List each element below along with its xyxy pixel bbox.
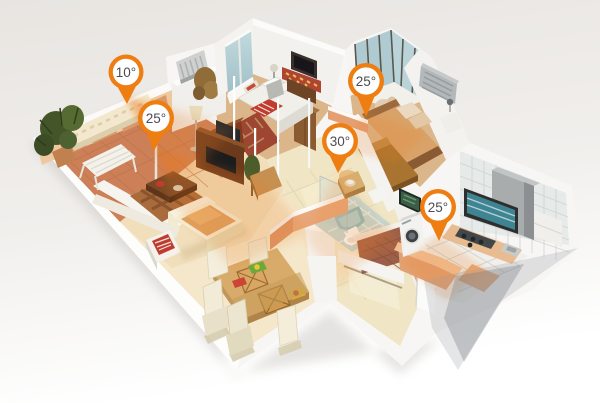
svg-text:25°: 25° xyxy=(146,111,166,126)
svg-text:10°: 10° xyxy=(116,65,136,80)
svg-text:30°: 30° xyxy=(330,134,350,149)
svg-text:25°: 25° xyxy=(428,200,448,215)
svg-text:25°: 25° xyxy=(356,74,376,89)
